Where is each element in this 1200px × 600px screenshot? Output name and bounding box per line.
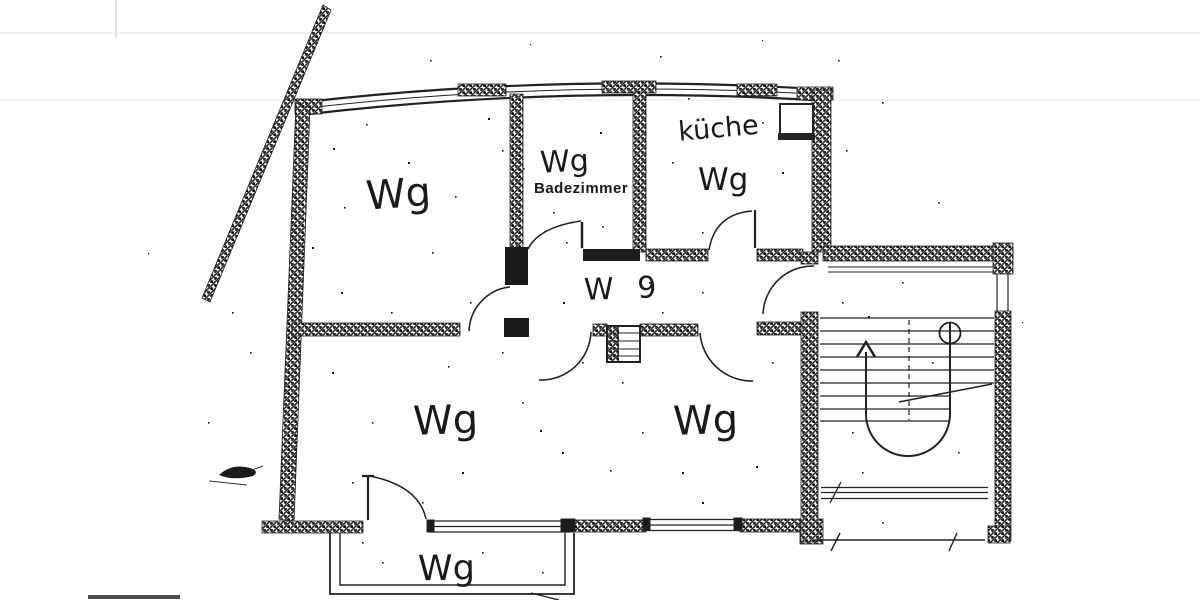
window-jamb [561, 519, 575, 532]
window-jamb [643, 518, 650, 530]
room-name-bathroom: Badezimmer [534, 180, 628, 197]
room-label-balcony: Wg [418, 548, 476, 589]
wall-middle [292, 323, 460, 336]
wall-bath-left [510, 94, 523, 250]
floor-plan-scan: Wg Wg Badezimmer küche Wg W 9 Wg Wg Wg [0, 0, 1200, 600]
room-label-living-right: Wg [672, 397, 739, 445]
wall-middle [640, 324, 698, 336]
room-label-top-left: Wg [364, 169, 432, 219]
wall-stairwell-right [993, 243, 1013, 274]
kitchen-shaft-edge [778, 133, 815, 140]
top-wall-pier [602, 81, 656, 93]
room-label-living-left: Wg [412, 397, 479, 445]
wall-middle [593, 324, 607, 336]
kitchen-shaft [780, 104, 813, 138]
window-jamb [427, 520, 434, 532]
door-jamb [505, 247, 528, 285]
floor-plan-drawing: Wg Wg Badezimmer küche Wg W 9 Wg Wg Wg [0, 0, 1200, 600]
wall-bath-bottom [583, 249, 640, 261]
wall-bath-right [633, 92, 646, 252]
right-wall-kitchen [812, 90, 831, 252]
bottom-wall [740, 519, 803, 532]
top-wall-pier [737, 84, 777, 96]
top-wall-pier [458, 84, 506, 96]
bottom-wall [262, 521, 363, 533]
wall-kitchen-bottom [646, 249, 708, 261]
wall-stairwell-left [801, 252, 818, 264]
bottom-wall [570, 520, 646, 532]
wall-stairwell-top [823, 246, 1013, 261]
wall-stairwell-left [801, 312, 818, 542]
wall-stairwell-right-foot [988, 526, 1010, 543]
scan-edge-mark [88, 595, 180, 599]
wall-stairwell-right [995, 311, 1011, 541]
chimney-shaft [607, 326, 640, 362]
room-label-bathroom-wg: Wg [539, 143, 589, 181]
window-jamb [734, 518, 742, 530]
room-label-hallway: W 9 [583, 270, 663, 308]
wall-kitchen-bottom [757, 249, 803, 261]
wall-middle [757, 322, 803, 335]
door-jamb [504, 318, 529, 337]
room-label-kitchen-wg: Wg [698, 162, 748, 198]
